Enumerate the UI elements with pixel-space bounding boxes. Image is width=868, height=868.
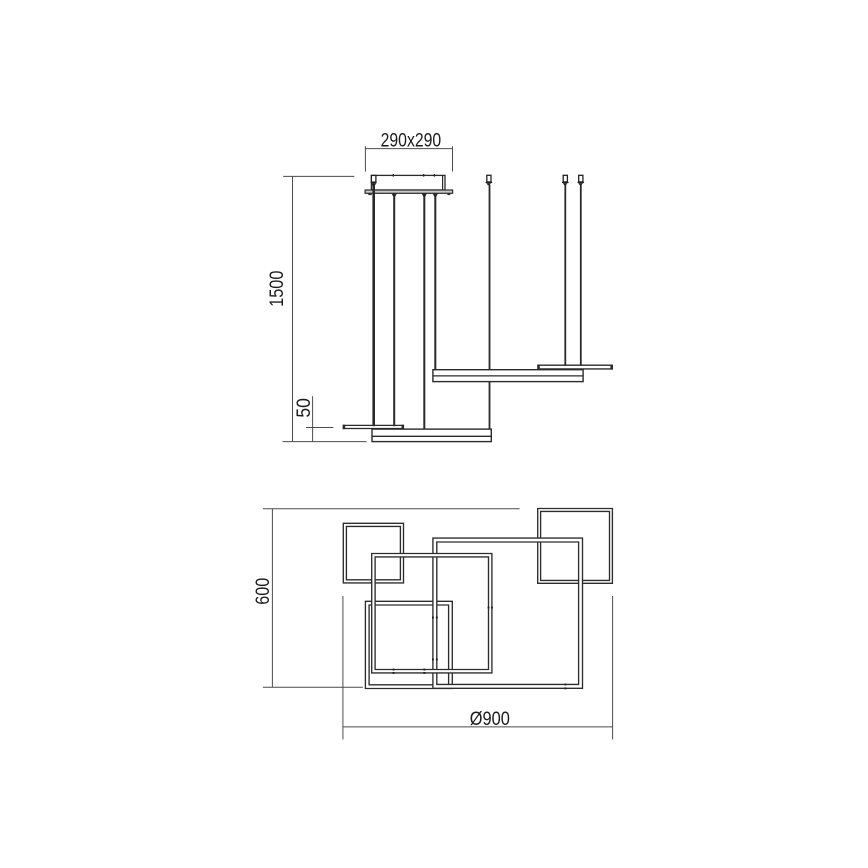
svg-text:50: 50 xyxy=(294,398,315,418)
svg-text:600: 600 xyxy=(253,578,274,605)
svg-text:Ø900: Ø900 xyxy=(470,709,510,730)
svg-text:1500: 1500 xyxy=(267,271,288,307)
